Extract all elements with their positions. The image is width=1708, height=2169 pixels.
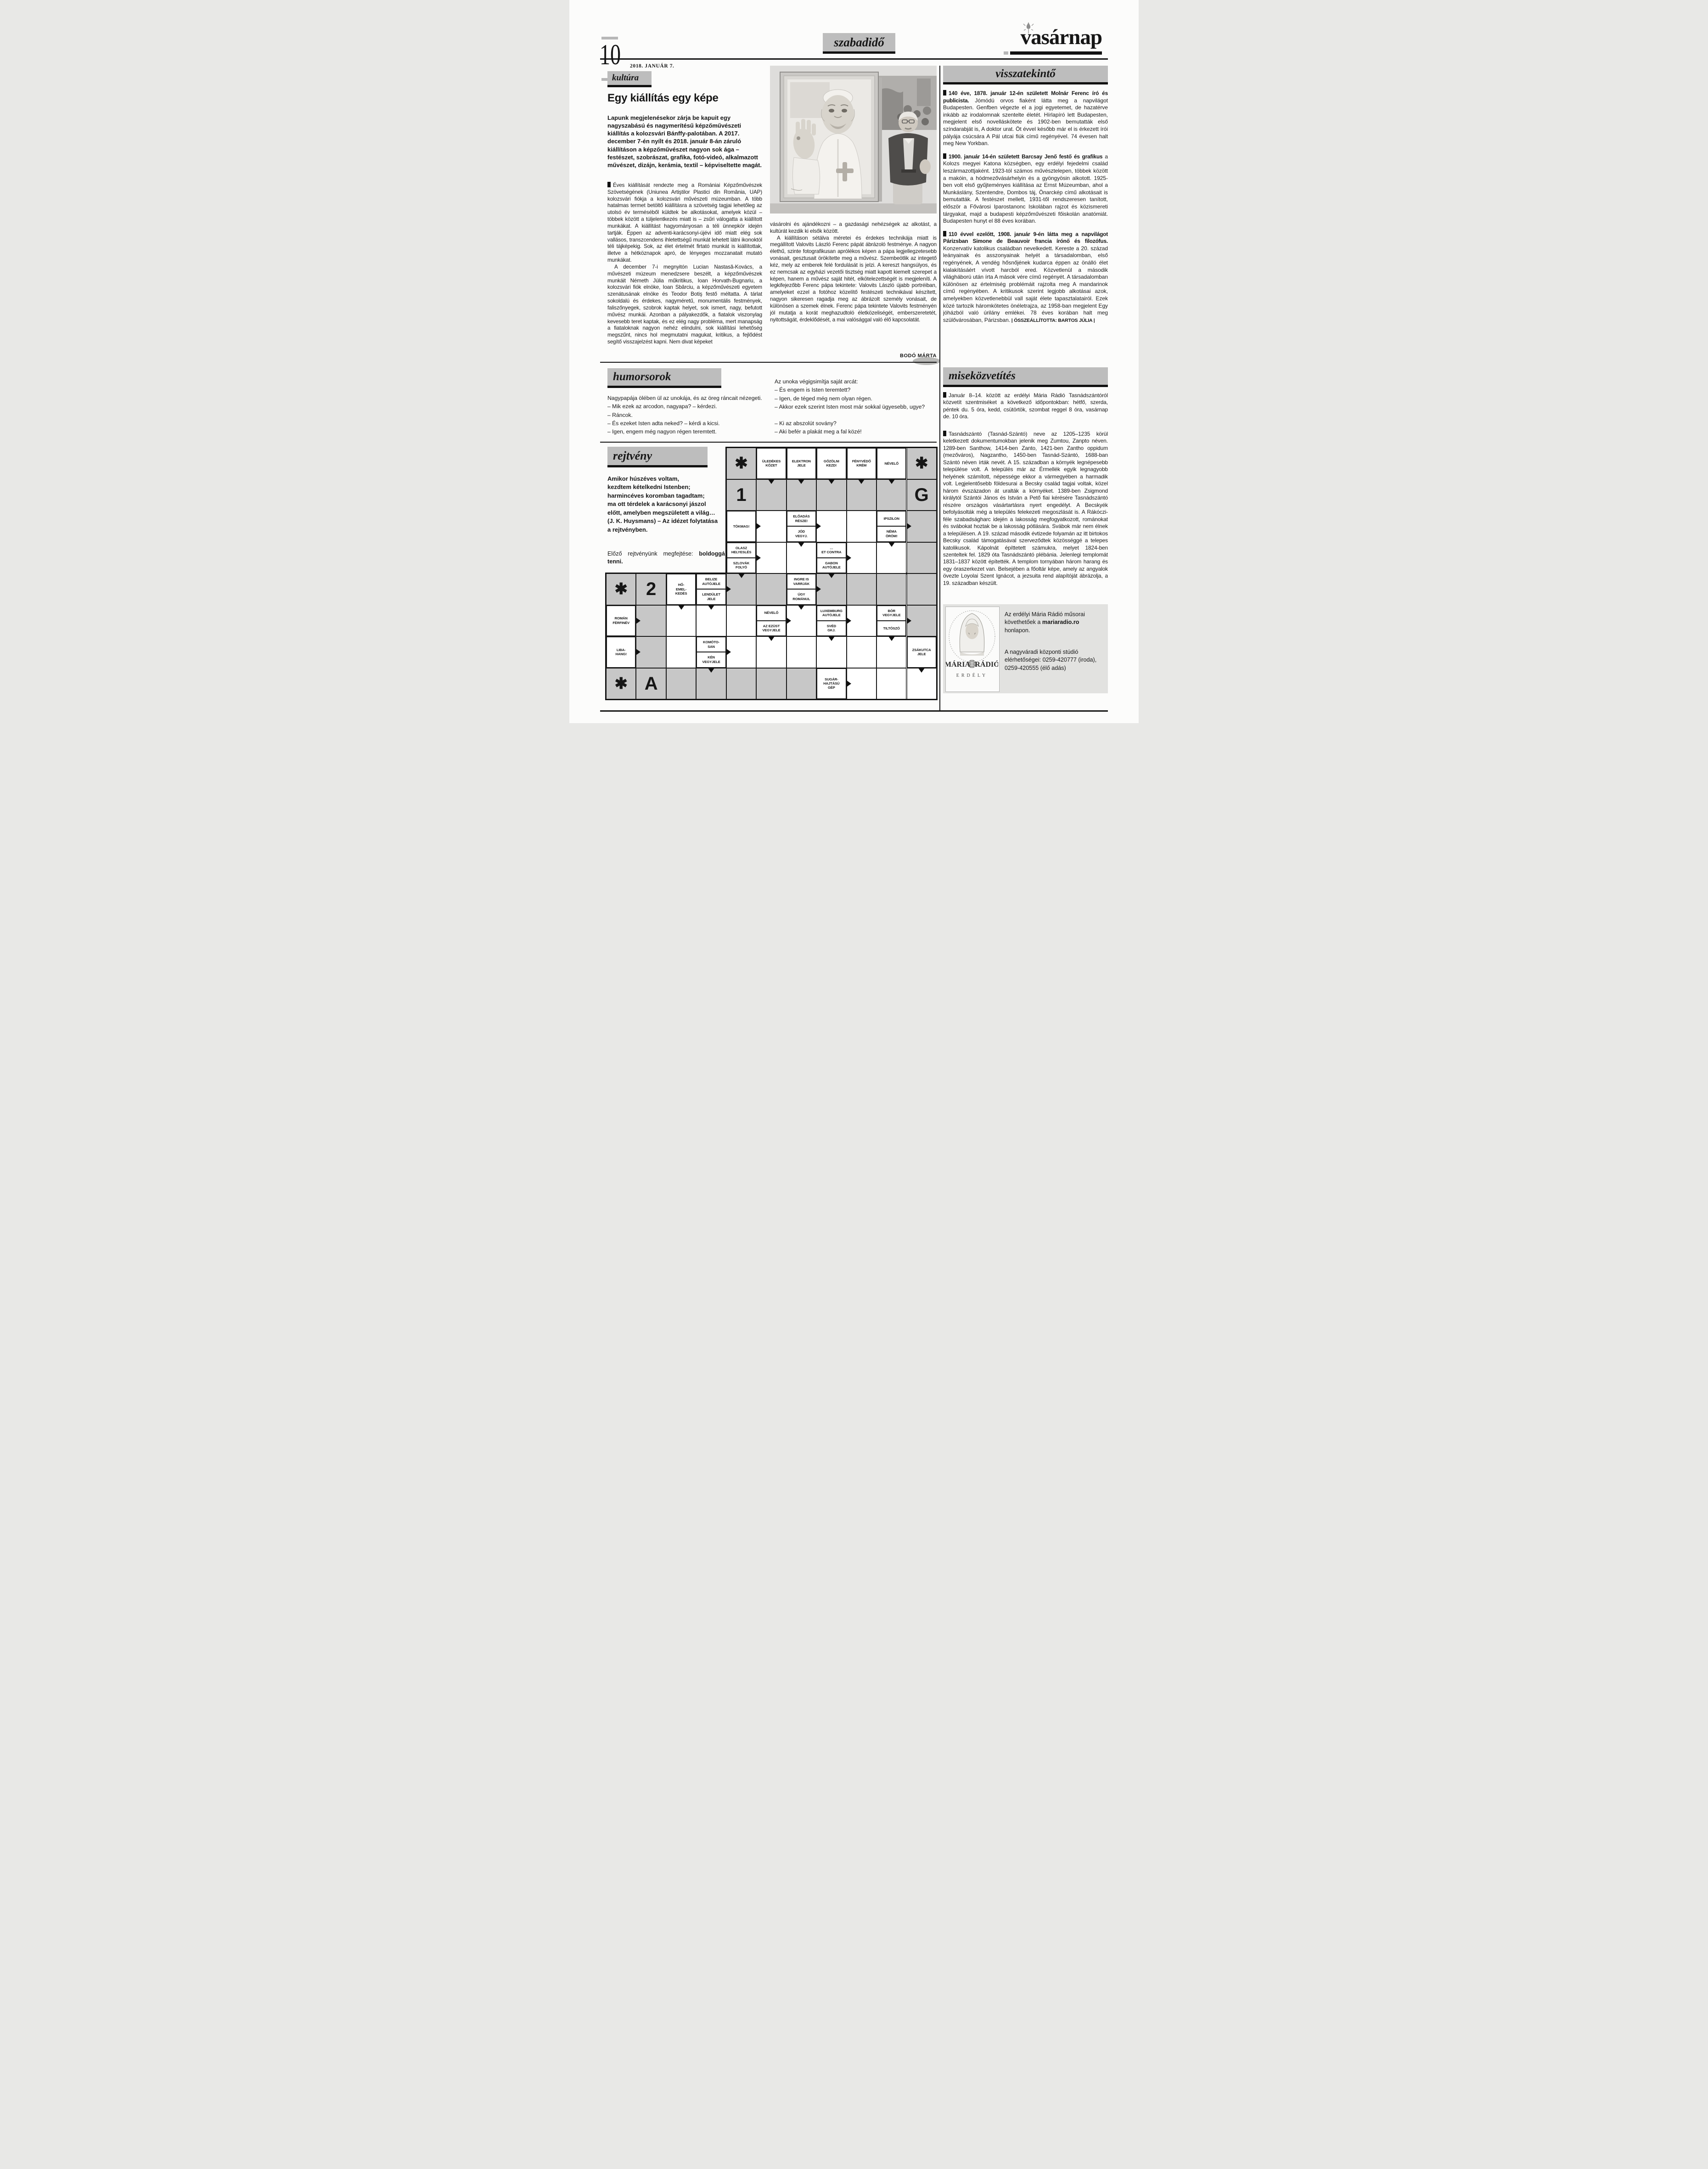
article-byline: BODÓ MÁRTA <box>770 353 937 359</box>
xw-symbol: 2 <box>646 580 656 598</box>
column-divider <box>939 66 940 710</box>
xw-clue-half: ÚGY ROMÁNUL <box>787 590 815 604</box>
xw-clue-text: … ET CONTRA <box>821 546 841 555</box>
xw-cell-r1c5 <box>756 479 786 511</box>
xw-cell-r7c2 <box>666 668 696 700</box>
mise-section-box: miseközvetítés <box>943 367 1108 387</box>
xw-cell-r0c5: ÜLEDÉKES KŐZET <box>756 448 786 479</box>
page-bottom-rule <box>600 710 1108 712</box>
xw-symbol: ✱ <box>915 455 928 471</box>
visszatekinto-section-label: visszatekintő <box>990 67 1061 81</box>
xw-clue-half: LUXEMBURG AUTÓJELE <box>817 606 845 621</box>
xw-cell-r6c3: KOMÓTO- SANKÉN VEGYJELE <box>696 636 726 668</box>
visszatekinto-item: 1900. január 14-én született Barcsay Jen… <box>943 153 1108 225</box>
xw-cell-r5c8 <box>847 605 876 637</box>
xw-clue-text: ÜLEDÉKES KŐZET <box>762 459 781 468</box>
arrow-down-icon <box>798 479 804 484</box>
xw-clue-text: BÓR VEGYJELE <box>882 609 900 618</box>
visszatekinto-items: 140 éve, 1878. január 12-én született Mo… <box>943 90 1108 362</box>
arrow-down-icon <box>828 636 835 641</box>
arrow-down-icon <box>888 542 895 547</box>
header-rule <box>600 58 1108 60</box>
arrow-right-icon <box>636 618 640 624</box>
xw-cell-r4c5 <box>756 573 786 605</box>
arrow-right-icon <box>787 618 791 624</box>
article-body-col1: Éves kiállítását rendezte meg a Romániai… <box>607 182 762 362</box>
mise-paragraph-1: Január 8–14. között az erdélyi Mária Rád… <box>943 392 1108 421</box>
arrow-right-icon <box>756 555 761 561</box>
xw-cell-r6c7 <box>816 636 846 668</box>
xw-cell-r0c4: ✱ <box>726 448 756 479</box>
xw-cell-r6c1 <box>636 636 666 668</box>
visszatekinto-item: 140 éve, 1878. január 12-én született Mo… <box>943 90 1108 147</box>
arrow-down-icon <box>738 573 745 578</box>
xw-cell-r7c9 <box>876 668 906 700</box>
xw-cell-r1c9 <box>876 479 906 511</box>
xw-cell-r0c9: NÉVELŐ <box>876 448 906 479</box>
xw-clue-text: NÉMA ÖRÖM! <box>886 529 898 538</box>
page-section-box: szabadidő <box>823 33 895 54</box>
xw-clue-half: LENDÜLET JELE <box>697 590 725 604</box>
xw-clue-text: KOMÓTO- SAN <box>703 640 719 649</box>
joke-line: – Igen, engem még nagyon régen teremtett… <box>607 427 764 436</box>
xw-clue-half: AZ EZÜST VEGYJELE <box>757 621 785 635</box>
svg-text:ERDÉLY: ERDÉLY <box>956 673 988 678</box>
joke-line: – És ezeket Isten adta neked? – kérdi a … <box>607 419 764 427</box>
xw-clue-text: ELŐADÁS RÉSZE! <box>793 514 809 523</box>
xw-cell-r1c10: G <box>907 479 937 511</box>
xw-clue-half: TILTÓSZÓ <box>877 621 905 635</box>
xw-clue-text: LUXEMBURG AUTÓJELE <box>820 609 843 618</box>
arrow-down-icon <box>888 636 895 641</box>
masthead-bar-accent <box>1004 51 1008 55</box>
xw-clue-half: SZLOVÁK FOLYÓ <box>727 558 755 573</box>
arrow-down-icon <box>828 573 835 578</box>
xw-cell-r6c6 <box>787 636 816 668</box>
xw-cell-r2c6: ELŐADÁS RÉSZE!JÓD VEGYJ. <box>787 511 816 542</box>
xw-cell-r4c6: INGRE IS VARRJÁKÚGY ROMÁNUL <box>787 573 816 605</box>
xw-cell-r7c8 <box>847 668 876 700</box>
xw-cell-r7c0: ✱ <box>606 668 636 700</box>
radio-text: honlapon. <box>1005 627 1030 634</box>
xw-cell-r1c4: 1 <box>726 479 756 511</box>
joke-line: – És engem is Isten teremtett? <box>775 386 935 394</box>
paragraph-marker <box>943 392 946 398</box>
xw-clue-text: GABON AUTÓJELE <box>822 561 841 570</box>
xw-clue-text: ELEKTRON JELE <box>792 459 811 468</box>
xw-cell-r2c4: TÖKMAG! <box>726 511 756 542</box>
maria-radio-box: MÁRIA RÁDIÓ ERDÉLY Az erdélyi Mária Rádi… <box>943 604 1108 693</box>
xw-cell-r4c2: HŐ- EMEL- KEDÉS <box>666 573 696 605</box>
xw-clue-half: SVÉD GKJ. <box>817 621 845 635</box>
svg-text:RÁDIÓ: RÁDIÓ <box>975 660 998 669</box>
radio-site: mariaradio.ro <box>1042 619 1079 625</box>
kultura-section-box: kultúra <box>607 71 652 87</box>
arrow-right-icon <box>816 586 821 592</box>
xw-cell-r5c0: ROMÁN FÉRFINÉV <box>606 605 636 637</box>
xw-cell-r6c9 <box>876 636 906 668</box>
arrow-down-icon <box>708 605 714 610</box>
visszatekinto-item: 110 évvel ezelőtt, 1908. január 9-én lát… <box>943 231 1108 324</box>
arrow-down-icon <box>798 542 804 547</box>
arrow-right-icon <box>816 523 821 529</box>
mise-paragraph-2: Tasnádszántó (Tasnád-Szántó) neve az 120… <box>943 431 1108 600</box>
xw-symbol: G <box>915 486 929 504</box>
paragraph-marker <box>943 90 946 96</box>
xw-cell-r1c8 <box>847 479 876 511</box>
article-paragraph: vásárolni és ajándékozni – a gazdasági n… <box>770 221 937 235</box>
xw-clue-text: INGRE IS VARRJÁK <box>793 577 809 586</box>
xw-cell-r0c7: GŐZÖLNI KEZD! <box>816 448 846 479</box>
newspaper-page: 10 2018. JANUÁR 7. szabadidő vasárnap ku… <box>569 0 1139 723</box>
xw-cell-r6c10: ZSÁKUTCA JELE <box>907 636 937 668</box>
xw-cell-r3c10 <box>907 542 937 574</box>
xw-cell-r2c7 <box>816 511 846 542</box>
mise-section-label: miseközvetítés <box>943 369 1021 383</box>
arrow-right-icon <box>847 618 851 624</box>
xw-clue-text: ÚGY ROMÁNUL <box>792 592 810 601</box>
xw-cell-r4c9 <box>876 573 906 605</box>
xw-symbol: 1 <box>736 486 746 504</box>
xw-clue-half: INGRE IS VARRJÁK <box>787 574 815 590</box>
xw-clue-half: NÉVELŐ <box>757 606 785 621</box>
xw-symbol: ✱ <box>614 581 628 597</box>
xw-cell-r3c6 <box>787 542 816 574</box>
xw-cell-r7c5 <box>756 668 786 700</box>
arrow-down-icon <box>708 668 714 673</box>
xw-cell-r4c4 <box>726 573 756 605</box>
masthead-bar <box>1010 51 1102 55</box>
arrow-right-icon <box>636 649 640 655</box>
xw-cell-r7c4 <box>726 668 756 700</box>
xw-clue-text: LIBA- HANG! <box>616 648 627 657</box>
xw-clue-half: JÓD VEGYJ. <box>787 527 815 541</box>
arrow-down-icon <box>798 605 804 610</box>
arrow-down-icon <box>828 479 835 484</box>
item-text: a Kolozs megyei Katona községben, egy er… <box>943 153 1108 224</box>
humor-top-rule <box>600 362 937 363</box>
article-text: A december 7-i megnyitón Lucian Nastasă-… <box>607 264 762 345</box>
arrow-right-icon <box>726 586 731 592</box>
humor-left: Nagypapája ölében ül az unokája, és az ö… <box>607 394 764 436</box>
xw-cell-r3c8 <box>847 542 876 574</box>
xw-clue-half: OLASZ HELYESLÉS <box>727 543 755 558</box>
xw-cell-r6c2 <box>666 636 696 668</box>
xw-cell-r5c3 <box>696 605 726 637</box>
article-text: A kiállításon sétálva méretei és érdekes… <box>770 235 937 323</box>
xw-symbol: ✱ <box>735 455 748 471</box>
xw-cell-r4c10 <box>907 573 937 605</box>
svg-text:MÁRIA: MÁRIA <box>946 660 970 669</box>
humor-bottom-rule <box>600 442 937 443</box>
radio-text: A nagyváradi központi stúdió elérhetőség… <box>1005 649 1096 671</box>
xw-clue-text: SVÉD GKJ. <box>827 624 836 633</box>
xw-cell-r3c5 <box>756 542 786 574</box>
article-text: vásárolni és ajándékozni – a gazdasági n… <box>770 221 937 234</box>
xw-clue-text: GŐZÖLNI KEZD! <box>824 459 839 468</box>
xw-cell-r7c1: A <box>636 668 666 700</box>
article-paragraph: A kiállításon sétálva méretei és érdekes… <box>770 235 937 324</box>
xw-clue-text: TÖKMAG! <box>733 524 750 528</box>
joke-line: – Ráncok. <box>607 411 764 419</box>
page-section-label: szabadidő <box>828 34 890 51</box>
item-bold-lead: 1900. január 14-én született Barcsay Jen… <box>949 153 1102 160</box>
xw-clue-text: SUGÁR- HAJTÁSÚ GÉP <box>823 677 839 690</box>
xw-cell-r5c1 <box>636 605 666 637</box>
xw-cell-r2c10 <box>907 511 937 542</box>
item-bold-lead: 110 évvel ezelőtt, 1908. január 9-én lát… <box>943 231 1108 245</box>
xw-cell-r6c0: LIBA- HANG! <box>606 636 636 668</box>
xw-clue-half: NÉMA ÖRÖM! <box>877 527 905 541</box>
xw-cell-r1c6 <box>787 479 816 511</box>
xw-clue-half: … ET CONTRA <box>817 543 845 558</box>
xw-clue-half: BELIZE AUTÓJELE <box>697 574 725 590</box>
article-body-col2: vásárolni és ajándékozni – a gazdasági n… <box>770 221 937 353</box>
arrow-down-icon <box>888 479 895 484</box>
xw-cell-r5c10 <box>907 605 937 637</box>
xw-cell-r5c2 <box>666 605 696 637</box>
xw-cell-r4c3: BELIZE AUTÓJELELENDÜLET JELE <box>696 573 726 605</box>
xw-cell-r4c7 <box>816 573 846 605</box>
xw-cell-r5c6 <box>787 605 816 637</box>
xw-clue-text: LENDÜLET JELE <box>702 592 720 601</box>
xw-clue-half: ELŐADÁS RÉSZE! <box>787 511 815 527</box>
xw-cell-r4c1: 2 <box>636 573 666 605</box>
humor-section-label: humorsorok <box>607 370 676 384</box>
xw-clue-half: BÓR VEGYJELE <box>877 606 905 621</box>
mise-text: Január 8–14. között az erdélyi Mária Rád… <box>943 392 1108 420</box>
item-text: Jómódú orvos fiaként látta meg a napvilá… <box>943 97 1108 147</box>
joke-line: Nagypapája ölében ül az unokája, és az ö… <box>607 394 764 402</box>
page-number: 10 <box>600 39 621 71</box>
visszatekinto-section-box: visszatekintő <box>943 66 1108 84</box>
joke-line: – Igen, de téged még nem olyan régen. <box>775 394 935 403</box>
xw-cell-r3c7: … ET CONTRAGABON AUTÓJELE <box>816 542 846 574</box>
xw-cell-r7c3 <box>696 668 726 700</box>
compiler-credit: | ÖSSZEÁLLÍTOTTA: BARTOS JÚLIA | <box>1010 318 1095 323</box>
arrow-down-icon <box>768 636 775 641</box>
xw-clue-text: ROMÁN FÉRFINÉV <box>612 616 629 625</box>
xw-cell-r6c4 <box>726 636 756 668</box>
paragraph-marker <box>943 231 946 236</box>
arrow-down-icon <box>768 479 775 484</box>
paragraph-marker <box>943 431 946 436</box>
xw-symbol: A <box>645 674 658 693</box>
arrow-right-icon <box>847 680 851 687</box>
xw-clue-text: IPSZILON <box>884 517 899 521</box>
arrow-down-icon <box>678 605 685 610</box>
xw-clue-text: AZ EZÜST VEGYJELE <box>762 624 780 633</box>
arrow-right-icon <box>847 555 851 561</box>
xw-cell-r5c7: LUXEMBURG AUTÓJELESVÉD GKJ. <box>816 605 846 637</box>
xw-cell-r1c7 <box>816 479 846 511</box>
article-paragraph: A december 7-i megnyitón Lucian Nastasă-… <box>607 264 762 346</box>
joke-line: – Akkor ezek szerint Isten most már sokk… <box>775 403 935 411</box>
xw-cell-r4c0: ✱ <box>606 573 636 605</box>
xw-cell-r6c5 <box>756 636 786 668</box>
xw-cell-r2c5 <box>756 511 786 542</box>
humor-section-box: humorsorok <box>607 368 721 388</box>
joke-line: Az unoka végigsimítja saját arcát: <box>775 377 935 386</box>
maria-radio-logo: MÁRIA RÁDIÓ ERDÉLY <box>945 607 1000 692</box>
xw-cell-r7c6 <box>787 668 816 700</box>
xw-clue-text: HŐ- EMEL- KEDÉS <box>675 583 687 596</box>
xw-clue-half: KOMÓTO- SAN <box>697 637 725 652</box>
arrow-right-icon <box>907 618 911 624</box>
xw-cell-r3c9 <box>876 542 906 574</box>
joke-line: – Mik ezek az arcodon, nagyapa? – kérdez… <box>607 402 764 410</box>
xw-clue-text: KÉN VEGYJELE <box>702 655 720 664</box>
joke-line: – Ki az abszolút sovány? <box>775 419 935 427</box>
xw-clue-text: TILTÓSZÓ <box>883 626 900 630</box>
maria-radio-text-1: Az erdélyi Mária Rádió műsorai követhető… <box>1005 611 1103 635</box>
article-lead: Lapunk megjelenésekor zárja be kapuit eg… <box>607 114 762 169</box>
xw-clue-text: NÉVELŐ <box>884 461 899 466</box>
xw-cell-r5c9: BÓR VEGYJELETILTÓSZÓ <box>876 605 906 637</box>
xw-cell-r2c9: IPSZILONNÉMA ÖRÖM! <box>876 511 906 542</box>
xw-cell-r2c8 <box>847 511 876 542</box>
article-title: Egy kiállítás egy képe <box>607 92 764 105</box>
xw-clue-text: SZLOVÁK FOLYÓ <box>733 561 750 570</box>
xw-cell-r7c7: SUGÁR- HAJTÁSÚ GÉP <box>816 668 846 700</box>
crossword-grid: ✱ÜLEDÉKES KŐZETELEKTRON JELEGŐZÖLNI KEZD… <box>606 448 937 699</box>
kultura-section-label: kultúra <box>607 73 643 83</box>
humor-right: Az unoka végigsimítja saját arcát:– És e… <box>775 377 935 436</box>
xw-clue-text: BELIZE AUTÓJELE <box>702 577 720 586</box>
joke-line: – Aki befér a plakát meg a fal közé! <box>775 427 935 436</box>
article-paragraph: Éves kiállítását rendezte meg a Romániai… <box>607 182 762 264</box>
joke-line <box>775 411 935 419</box>
arrow-down-icon <box>858 479 865 484</box>
xw-cell-r6c8 <box>847 636 876 668</box>
xw-cell-r7c10 <box>907 668 937 700</box>
xw-symbol: ✱ <box>614 676 628 691</box>
xw-cell-r5c4 <box>726 605 756 637</box>
item-text: Konzervatív katolikus családban nevelked… <box>943 245 1108 323</box>
xw-cell-r0c6: ELEKTRON JELE <box>787 448 816 479</box>
paragraph-marker <box>943 153 946 159</box>
photo-illustration <box>770 66 937 214</box>
maria-radio-text-2: A nagyváradi központi stúdió elérhetőség… <box>1005 648 1103 672</box>
exhibition-photo <box>770 66 937 214</box>
arrow-down-icon <box>918 668 925 673</box>
paragraph-marker <box>607 182 611 187</box>
xw-clue-half: KÉN VEGYJELE <box>697 652 725 667</box>
mise-text: Tasnádszántó (Tasnád-Szántó) neve az 120… <box>943 431 1108 586</box>
article-text: Éves kiállítását rendezte meg a Romániai… <box>607 182 762 263</box>
masthead: vasárnap <box>983 27 1102 48</box>
xw-clue-half: IPSZILON <box>877 511 905 527</box>
maria-radio-logo-image: MÁRIA RÁDIÓ ERDÉLY <box>946 607 998 691</box>
xw-clue-text: OLASZ HELYESLÉS <box>731 546 752 555</box>
arrow-right-icon <box>907 523 911 529</box>
arrow-right-icon <box>756 523 761 529</box>
xw-cell-r0c8: FÉNYVÉDŐ KRÉM <box>847 448 876 479</box>
xw-cell-r4c8 <box>847 573 876 605</box>
xw-cell-r0c10: ✱ <box>907 448 937 479</box>
xw-clue-text: ZSÁKUTCA JELE <box>912 648 931 657</box>
issue-date: 2018. JANUÁR 7. <box>630 63 674 69</box>
xw-cell-r5c5: NÉVELŐAZ EZÜST VEGYJELE <box>756 605 786 637</box>
xw-clue-text: NÉVELŐ <box>764 611 779 615</box>
xw-clue-text: FÉNYVÉDŐ KRÉM <box>852 459 871 468</box>
xw-clue-text: JÓD VEGYJ. <box>795 529 808 538</box>
xw-clue-half: GABON AUTÓJELE <box>817 558 845 573</box>
xw-cell-r3c4: OLASZ HELYESLÉSSZLOVÁK FOLYÓ <box>726 542 756 574</box>
arrow-right-icon <box>726 649 731 655</box>
